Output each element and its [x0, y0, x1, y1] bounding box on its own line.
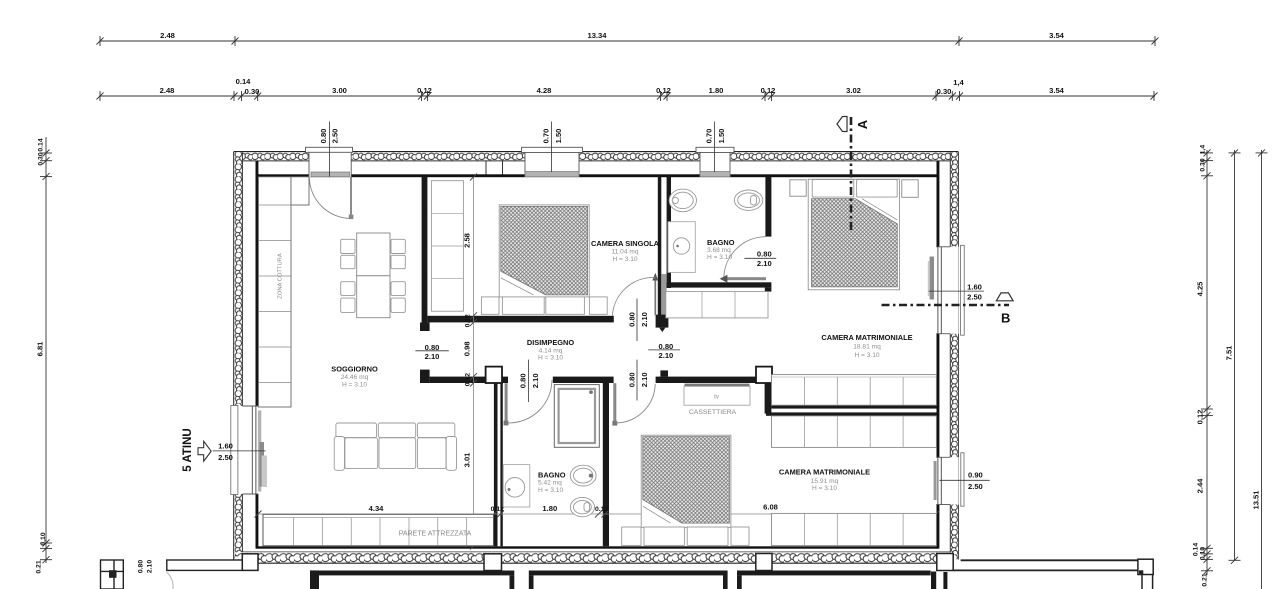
- svg-text:0,10: 0,10: [40, 532, 47, 545]
- svg-text:3.54: 3.54: [1049, 31, 1065, 40]
- svg-text:1.50: 1.50: [717, 129, 726, 144]
- svg-text:0.70: 0.70: [705, 129, 714, 144]
- svg-text:H = 3.10: H = 3.10: [854, 352, 879, 359]
- svg-text:2.44: 2.44: [1196, 478, 1205, 494]
- svg-text:2.50: 2.50: [967, 293, 982, 302]
- svg-text:0.70: 0.70: [542, 129, 551, 144]
- svg-text:0.30: 0.30: [1200, 158, 1207, 171]
- svg-text:0.80: 0.80: [627, 312, 636, 327]
- svg-text:A: A: [855, 119, 870, 129]
- svg-text:1,4: 1,4: [1200, 145, 1207, 155]
- svg-text:B: B: [1001, 311, 1010, 326]
- svg-text:0.14: 0.14: [1193, 543, 1200, 556]
- svg-text:0,12: 0,12: [1196, 410, 1205, 425]
- svg-text:2.10: 2.10: [757, 259, 772, 268]
- svg-text:H = 3.10: H = 3.10: [538, 355, 563, 362]
- svg-text:15.91 mq: 15.91 mq: [811, 478, 839, 485]
- svg-text:0.30: 0.30: [38, 152, 45, 165]
- svg-text:1.60: 1.60: [967, 283, 982, 292]
- svg-text:2.10: 2.10: [531, 373, 540, 388]
- svg-text:2.10: 2.10: [640, 312, 649, 327]
- svg-text:H = 3.10: H = 3.10: [812, 485, 837, 492]
- svg-text:CASSETTIERA: CASSETTIERA: [689, 409, 737, 416]
- svg-text:2.48: 2.48: [160, 86, 175, 95]
- svg-text:0.12: 0.12: [465, 314, 472, 327]
- svg-text:1.80: 1.80: [709, 86, 724, 95]
- svg-text:2.58: 2.58: [463, 233, 472, 248]
- svg-text:2.50: 2.50: [331, 129, 340, 144]
- svg-text:2.10: 2.10: [659, 351, 674, 360]
- svg-text:1.80: 1.80: [542, 504, 557, 513]
- svg-text:H = 3.10: H = 3.10: [707, 254, 732, 261]
- svg-text:11.04 mq: 11.04 mq: [611, 248, 638, 255]
- svg-text:ZONA COTTURA: ZONA COTTURA: [278, 253, 284, 299]
- svg-text:0.14: 0.14: [236, 77, 252, 86]
- svg-text:tv: tv: [714, 395, 719, 401]
- svg-text:1.50: 1.50: [554, 129, 563, 144]
- svg-text:DISIMPEGNO: DISIMPEGNO: [527, 338, 574, 347]
- svg-text:PARETE ATTREZZATA: PARETE ATTREZZATA: [399, 530, 472, 537]
- svg-text:1.60: 1.60: [218, 442, 233, 451]
- svg-text:3.68 mq: 3.68 mq: [707, 247, 731, 254]
- svg-text:0,12: 0,12: [417, 86, 432, 95]
- svg-text:3.00: 3.00: [332, 86, 347, 95]
- svg-text:H = 3.10: H = 3.10: [342, 382, 367, 389]
- svg-text:BAGNO: BAGNO: [538, 470, 566, 479]
- svg-text:0.21: 0.21: [36, 560, 43, 573]
- svg-text:24.46 mq: 24.46 mq: [341, 374, 369, 381]
- svg-text:0.14: 0.14: [38, 138, 45, 151]
- svg-text:0,12: 0,12: [761, 86, 776, 95]
- svg-text:6.81: 6.81: [36, 341, 45, 357]
- svg-text:0.12: 0.12: [595, 506, 608, 513]
- svg-text:4.34: 4.34: [369, 504, 385, 513]
- svg-text:13.34: 13.34: [587, 31, 607, 40]
- svg-text:2.50: 2.50: [218, 453, 233, 462]
- svg-text:4.28: 4.28: [537, 86, 552, 95]
- svg-text:3.54: 3.54: [1049, 86, 1065, 95]
- svg-text:2.10: 2.10: [425, 352, 440, 361]
- svg-text:0.80: 0.80: [519, 373, 528, 388]
- svg-text:7.51: 7.51: [1225, 345, 1234, 361]
- svg-text:0.80: 0.80: [138, 560, 145, 573]
- svg-text:CAMERA MATRIMONIALE: CAMERA MATRIMONIALE: [821, 333, 912, 342]
- svg-text:0.21: 0.21: [1202, 573, 1209, 586]
- svg-text:0.90: 0.90: [968, 470, 983, 479]
- svg-text:0.12: 0.12: [465, 373, 472, 386]
- svg-text:CAMERA SINGOLA: CAMERA SINGOLA: [591, 239, 660, 248]
- svg-text:H = 3.10: H = 3.10: [612, 256, 637, 263]
- svg-text:2.50: 2.50: [968, 482, 983, 491]
- svg-text:4.25: 4.25: [1196, 281, 1205, 297]
- svg-text:18.81 mq: 18.81 mq: [853, 344, 881, 351]
- svg-text:2.10: 2.10: [640, 372, 649, 387]
- svg-text:5.42 mq: 5.42 mq: [538, 480, 562, 487]
- svg-text:0.12: 0.12: [491, 506, 504, 513]
- svg-text:13.51: 13.51: [1252, 490, 1261, 510]
- svg-text:0,10: 0,10: [1200, 547, 1207, 560]
- svg-text:0.80: 0.80: [319, 129, 328, 144]
- svg-text:0.80: 0.80: [627, 372, 636, 387]
- svg-text:BAGNO: BAGNO: [707, 238, 735, 247]
- svg-text:0.98: 0.98: [463, 341, 472, 356]
- svg-text:0.30: 0.30: [245, 87, 260, 96]
- svg-text:H = 3.10: H = 3.10: [538, 487, 563, 494]
- svg-text:0.30: 0.30: [937, 87, 952, 96]
- svg-text:1,4: 1,4: [953, 78, 964, 87]
- svg-text:3.01: 3.01: [463, 452, 472, 468]
- svg-text:3.02: 3.02: [846, 86, 861, 95]
- svg-text:4.14 mq: 4.14 mq: [539, 348, 563, 355]
- svg-text:SOGGIORNO: SOGGIORNO: [331, 365, 378, 374]
- svg-text:2.10: 2.10: [147, 560, 154, 573]
- svg-text:0.80: 0.80: [659, 342, 674, 351]
- svg-text:0,12: 0,12: [656, 86, 671, 95]
- svg-text:2.48: 2.48: [160, 31, 175, 40]
- svg-text:5 ATINU: 5 ATINU: [182, 428, 194, 471]
- svg-text:6.08: 6.08: [763, 503, 778, 512]
- svg-text:0.80: 0.80: [757, 250, 772, 259]
- svg-text:CAMERA MATRIMONIALE: CAMERA MATRIMONIALE: [779, 468, 870, 477]
